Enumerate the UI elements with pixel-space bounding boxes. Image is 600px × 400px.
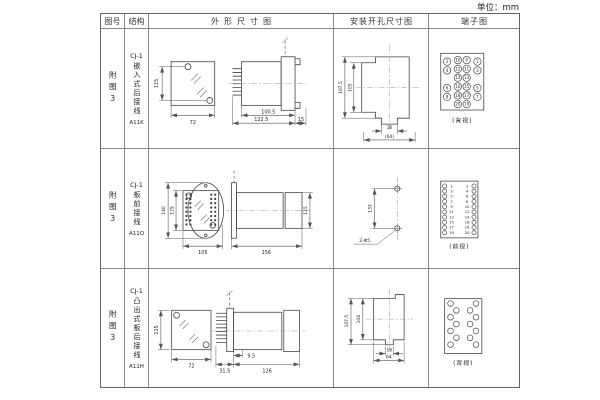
mounting-diagram-a11q: 133 2-Φ5 xyxy=(334,149,428,268)
terminal-circles-front-view: 1 3 5 7 9 11 13 15 17 19 2 4 6 8 10 12 1 xyxy=(443,184,476,235)
terminal-number: 13 xyxy=(464,75,469,80)
front-view-dimensions: 115 72 xyxy=(154,67,215,127)
relay-structure-name: 凸出式板后接线 xyxy=(133,297,140,360)
terminal-number: 7 xyxy=(450,200,453,204)
side-view xyxy=(227,171,310,238)
spec-table: 图号 结构 外形尺寸图 安装开孔尺寸图 端子图 附图3 CJ-1 嵌入式后接线 … xyxy=(100,13,520,388)
mounting-diagram-a11k: 107.5 105 16 (64) xyxy=(334,29,428,148)
dim-body-length: 100.5 xyxy=(261,109,275,115)
mounting-dimensions: 133 2-Φ5 xyxy=(354,189,396,244)
terminal-number: 9 xyxy=(465,58,468,63)
cutout-outline xyxy=(356,45,421,130)
dim-side-height: 115 xyxy=(303,206,309,215)
dim-front-width: 72 xyxy=(188,363,194,369)
terminal-number: 14 xyxy=(465,215,470,219)
terminal-number: 15 xyxy=(464,84,469,89)
terminal-number: 1 xyxy=(450,184,453,188)
structure-cell-row1: CJ-1 嵌入式后接线 A11K xyxy=(125,29,149,149)
document-page: 单位：mm 图号 结构 外形尺寸图 安装开孔尺寸图 端子图 附图3 CJ-1 嵌… xyxy=(0,0,600,400)
outline-cell-row1: 115 72 100.5 xyxy=(149,29,334,149)
terminal-number: 18 xyxy=(465,226,470,230)
terminal-number: 15 xyxy=(449,221,454,225)
relay-model-code: A11K xyxy=(129,120,143,126)
side-view xyxy=(229,38,308,110)
side-view xyxy=(212,291,305,352)
front-view xyxy=(172,310,211,349)
cutout-outline xyxy=(366,289,413,352)
terminal-number: 8 xyxy=(446,94,449,99)
relay-series: CJ-1 xyxy=(130,52,143,60)
dim-front-width: 72 xyxy=(190,120,196,126)
terminal-cell-row2: 1 3 5 7 9 11 13 15 17 19 2 4 6 8 10 12 1 xyxy=(429,149,519,269)
dim-body-length: 126 xyxy=(262,368,271,374)
mounting-diagram-a11h: 107.5 104 16 64 xyxy=(334,269,428,387)
front-view xyxy=(171,62,215,106)
dim-hole-span: (64) xyxy=(385,134,394,140)
dim-slot-width: 16 xyxy=(387,125,393,131)
terminal-diagram-a11h: (背视) xyxy=(429,269,519,387)
dim-side-length: 156 xyxy=(262,250,271,256)
dim-hole-spacing: 133 xyxy=(368,204,374,213)
terminal-number: 20 xyxy=(465,231,470,235)
header-structure: 结构 xyxy=(125,14,149,29)
structure-cell-row3: CJ-1 凸出式板后接线 A11H xyxy=(125,269,149,387)
terminal-number: 10 xyxy=(455,58,460,63)
dim-flange-depth: 9.5 xyxy=(247,354,255,360)
outline-diagram-a11q: 140 125 105 115 xyxy=(149,149,333,268)
dim-rear-depth: 15 xyxy=(298,117,304,123)
terminal-number: 17 xyxy=(464,93,469,98)
terminal-number: 5 xyxy=(476,85,479,90)
dim-slot-width: 16 xyxy=(387,348,393,354)
fig-number: 附图3 xyxy=(109,310,117,346)
fig-number: 附图3 xyxy=(109,191,117,227)
dim-front-width: 105 xyxy=(198,250,207,256)
terminal-number: 18 xyxy=(455,93,460,98)
mounting-cell-row1: 107.5 105 16 (64) xyxy=(334,29,429,149)
mounting-cell-row3: 107.5 104 16 64 xyxy=(334,269,429,387)
dim-pin-length: 31.5 xyxy=(219,368,230,374)
terminal-number: 2 xyxy=(466,184,468,188)
fig-cell-row2: 附图3 xyxy=(101,149,125,269)
terminal-number: 1 xyxy=(476,59,479,64)
relay-model-code: A11H xyxy=(129,364,144,370)
terminal-number: 16 xyxy=(455,84,460,89)
mounting-cell-row2: 133 2-Φ5 xyxy=(334,149,429,269)
terminal-diagram-a11k: 2 4 6 8 10 12 14 16 18 20 9 11 13 15 17 … xyxy=(429,29,519,148)
terminal-block-outline xyxy=(445,299,482,354)
terminal-number: 6 xyxy=(446,85,449,90)
terminal-number: 6 xyxy=(466,195,469,199)
view-label: (前视) xyxy=(449,243,469,251)
terminal-diagram-a11q: 1 3 5 7 9 11 13 15 17 19 2 4 6 8 10 12 1 xyxy=(429,149,519,268)
terminal-number: 3 xyxy=(476,68,479,73)
relay-series: CJ-1 xyxy=(130,181,143,189)
terminal-number: 12 xyxy=(455,66,460,71)
terminal-number: 4 xyxy=(446,68,449,73)
front-view-dimensions: 115 72 xyxy=(154,310,211,369)
relay-model-code: A11Q xyxy=(129,231,144,237)
header-outline: 外形尺寸图 xyxy=(149,14,334,29)
terminal-number: 16 xyxy=(465,221,470,225)
front-view xyxy=(183,183,224,239)
terminal-number: 11 xyxy=(449,210,454,214)
view-label: (背视) xyxy=(453,359,473,367)
terminal-number: 9 xyxy=(450,205,453,209)
unit-label: 单位：mm xyxy=(100,1,519,13)
terminal-number: 11 xyxy=(464,66,469,71)
terminal-number: 3 xyxy=(450,189,453,193)
fig-cell-row3: 附图3 xyxy=(101,269,125,387)
holes-callout: 2-Φ5 xyxy=(359,238,370,244)
dim-inner-height: 105 xyxy=(347,83,353,92)
dim-front-height: 115 xyxy=(154,79,160,88)
dim-outer-height: 107.5 xyxy=(338,81,344,94)
terminal-number: 19 xyxy=(464,102,469,107)
fig-cell-row1: 附图3 xyxy=(101,29,125,149)
header-mounting: 安装开孔尺寸图 xyxy=(334,14,429,29)
terminal-number: 19 xyxy=(449,231,454,235)
dim-outer-height: 107.5 xyxy=(344,315,350,328)
dim-front-height: 115 xyxy=(154,325,160,334)
dim-total-length: 122.5 xyxy=(254,117,268,123)
fig-number: 附图3 xyxy=(109,71,117,107)
structure-cell-row2: CJ-1 板前接线 A11Q xyxy=(125,149,149,269)
terminal-cell-row3: (背视) xyxy=(429,269,519,387)
terminal-number: 12 xyxy=(465,210,470,214)
terminal-number: 17 xyxy=(449,226,454,230)
dim-outer-height: 140 xyxy=(161,206,167,215)
outline-cell-row2: 140 125 105 115 xyxy=(149,149,334,269)
terminal-number: 5 xyxy=(450,195,453,199)
terminal-number: 8 xyxy=(466,200,469,204)
relay-structure-name: 板前接线 xyxy=(133,191,140,227)
outline-cell-row3: 115 72 9.5 31 xyxy=(149,269,334,387)
terminal-number: 14 xyxy=(455,75,460,80)
terminal-number: 13 xyxy=(449,215,454,219)
outline-diagram-a11k: 115 72 100.5 xyxy=(149,29,333,148)
dim-inner-height: 125 xyxy=(170,206,176,215)
terminal-number: 4 xyxy=(466,189,469,193)
cutout-dimensions: 107.5 105 16 (64) xyxy=(338,57,415,142)
header-fig: 图号 xyxy=(101,14,125,29)
relay-structure-name: 嵌入式后接线 xyxy=(133,62,140,116)
terminal-circles-rear-view: 2 4 6 8 10 12 14 16 18 20 9 11 13 15 17 … xyxy=(443,56,481,107)
dim-hole-span: 64 xyxy=(386,354,392,360)
terminal-number: 7 xyxy=(476,94,479,99)
terminal-circles-rear-view xyxy=(448,301,479,348)
outline-diagram-a11h: 115 72 9.5 31 xyxy=(149,269,333,387)
terminal-cell-row1: 2 4 6 8 10 12 14 16 18 20 9 11 13 15 17 … xyxy=(429,29,519,149)
view-label: (背视) xyxy=(452,117,472,125)
header-terminal: 端子图 xyxy=(429,14,519,29)
terminal-number: 2 xyxy=(446,59,449,64)
mounting-holes xyxy=(392,177,402,240)
dim-inner-height: 104 xyxy=(356,315,362,324)
side-view-dimensions: 115 156 xyxy=(232,193,313,256)
terminal-number: 10 xyxy=(465,205,470,209)
cutout-dimensions: 107.5 104 16 64 xyxy=(344,299,404,364)
relay-series: CJ-1 xyxy=(130,287,143,295)
terminal-number: 20 xyxy=(455,102,460,107)
